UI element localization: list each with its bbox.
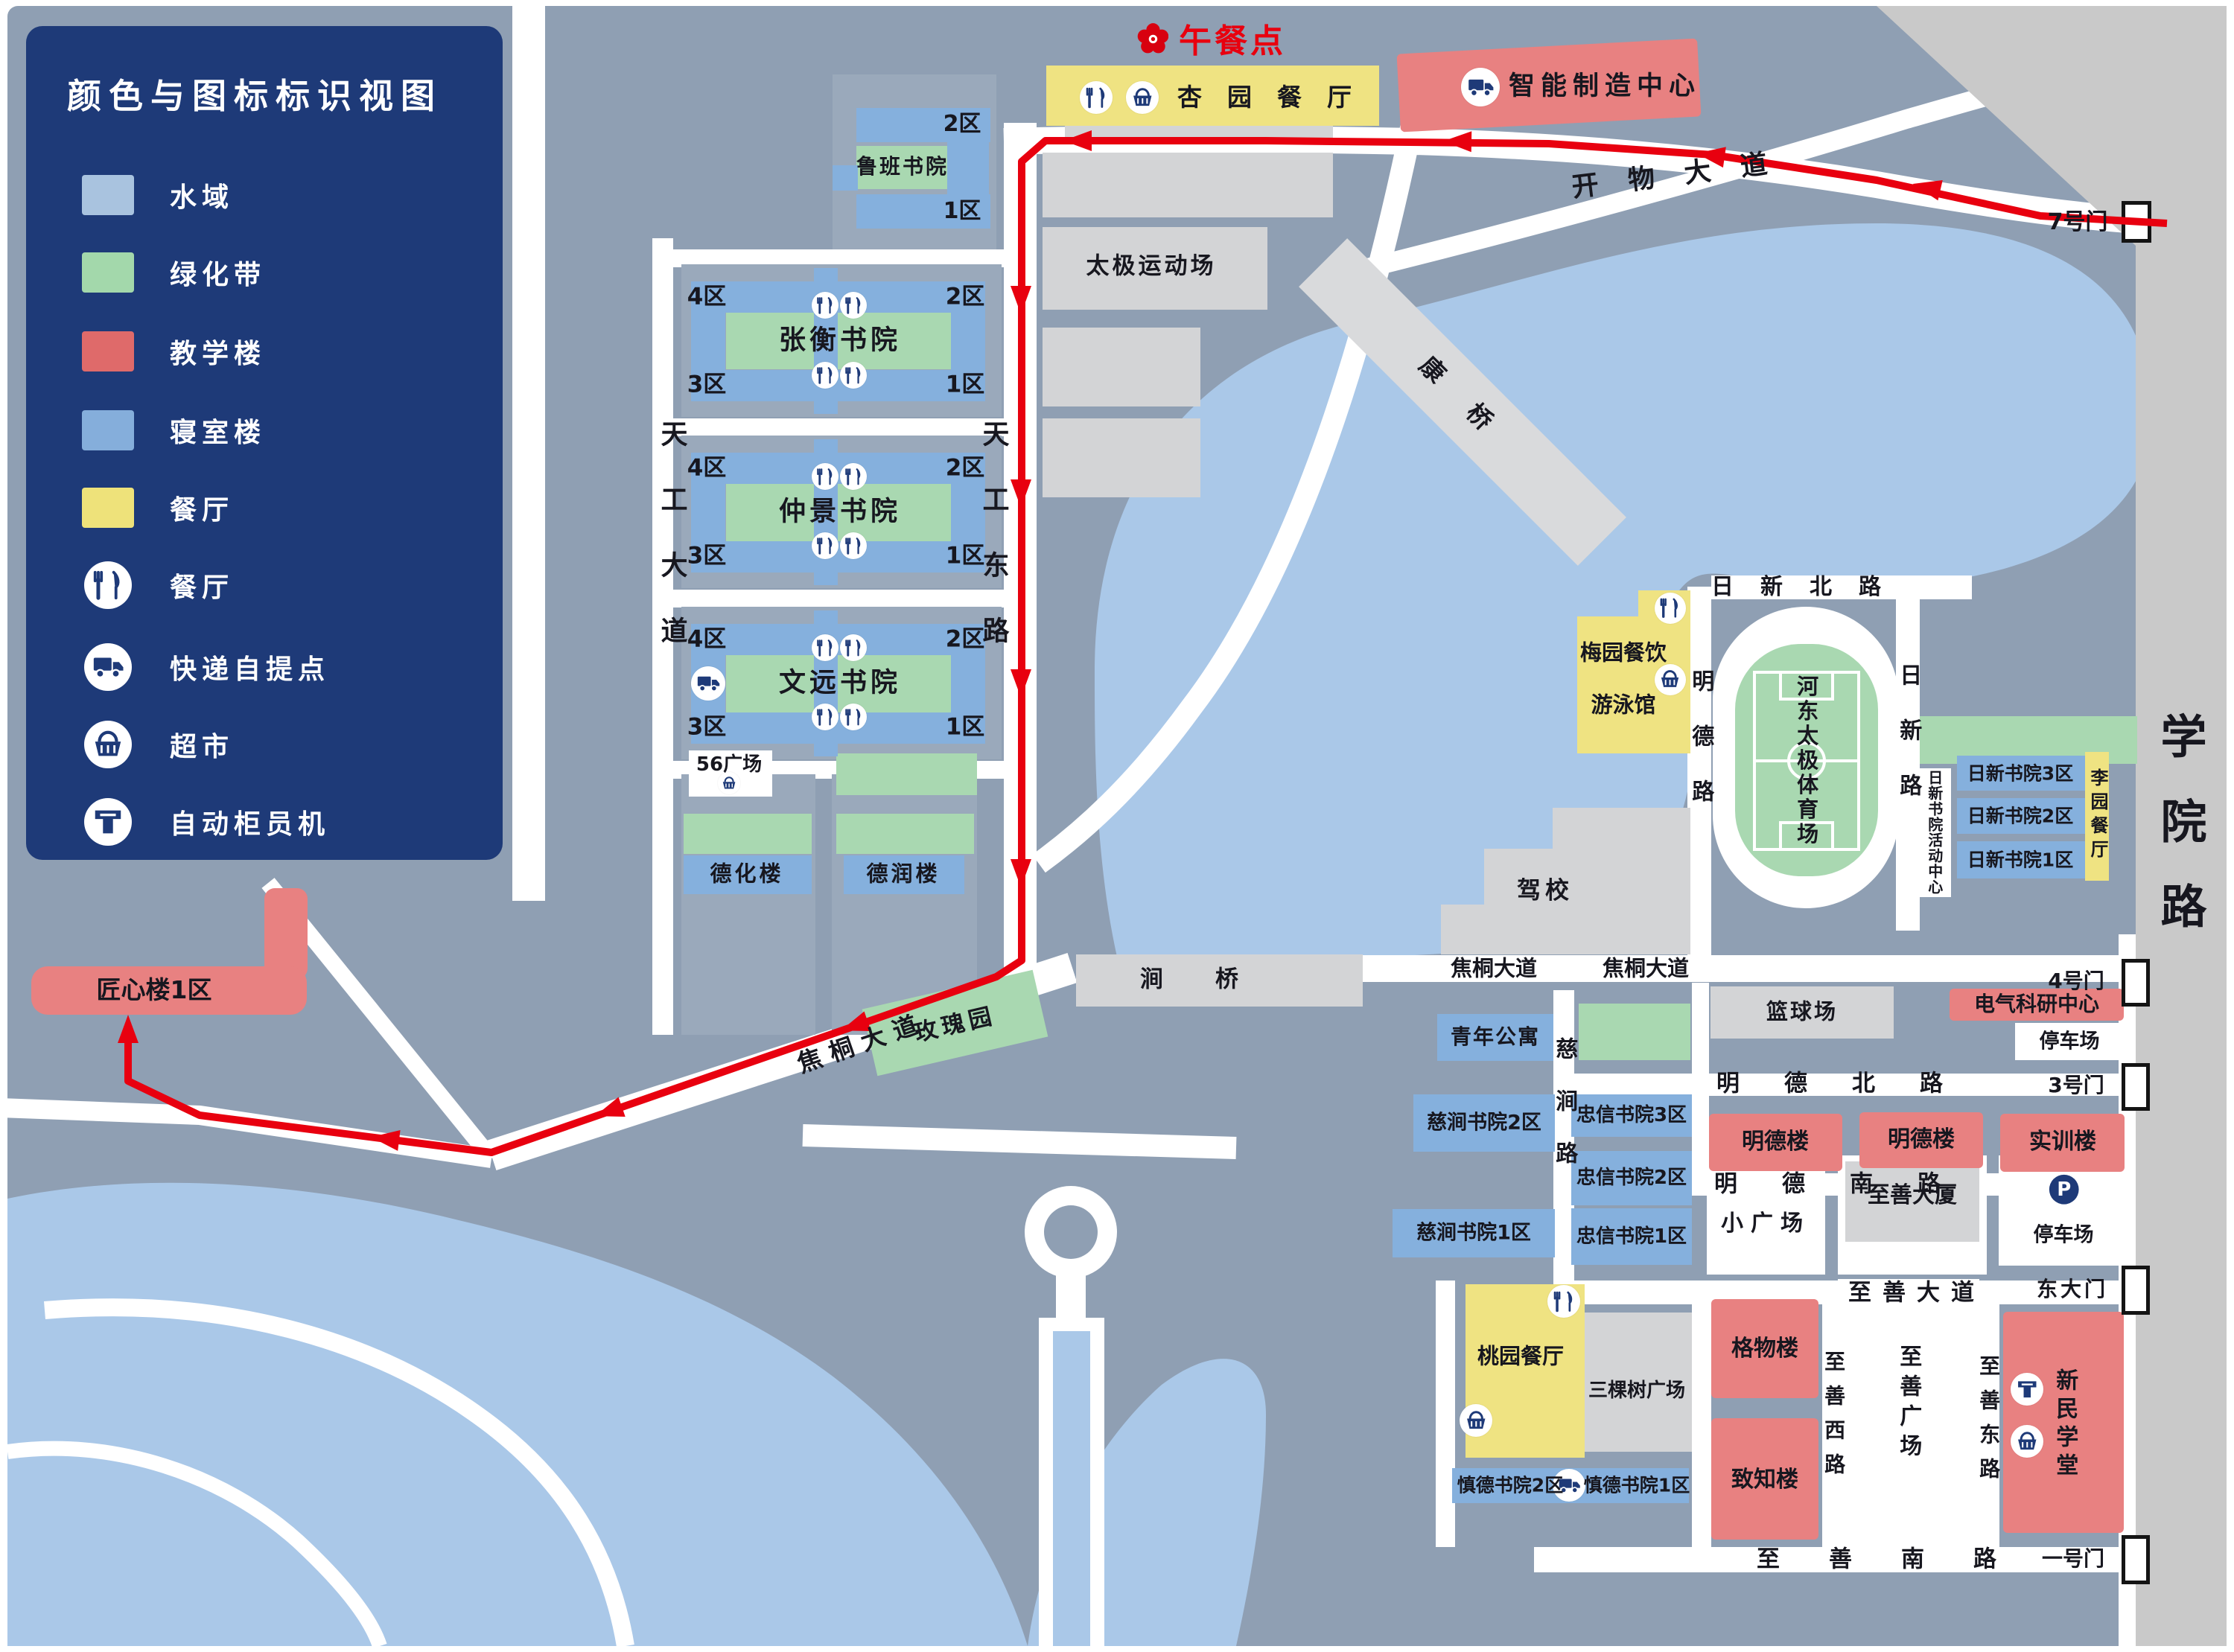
green-dehua [684, 814, 812, 854]
zhangheng-fork-4 [840, 362, 867, 389]
gate-1 [2122, 1535, 2150, 1584]
xinmin-label: 新民学堂 [2052, 1368, 2076, 1482]
electric-label: 电气科研中心 [1974, 993, 2099, 1015]
rixin2-label: 日新书院2区 [1967, 806, 2073, 826]
basketball-label: 篮球场 [1766, 1000, 1838, 1023]
zhangheng-right [951, 313, 985, 370]
tiangong-avenue: 天工大道 [657, 420, 686, 682]
rixin1-label: 日新书院1区 [1967, 850, 2073, 870]
legend-atm-icon [84, 798, 132, 846]
gate-7 [2122, 201, 2151, 243]
east-gate-label: 东大门 [2037, 1278, 2108, 1301]
gewu-label: 格物楼 [1731, 1337, 1798, 1361]
lunch-flower-icon [1131, 17, 1174, 60]
small-plaza-label: 小广场 [1721, 1212, 1810, 1236]
stadium-label: 河东太极体育场 [1794, 675, 1817, 847]
wenyuan-z1: 1区 [946, 715, 985, 739]
xinmin-atm-icon [2011, 1373, 2043, 1406]
rixin3-label: 日新书院3区 [1967, 764, 2073, 784]
taiji-bar-4 [1043, 418, 1200, 497]
taoyuan-fork-icon [1547, 1285, 1580, 1318]
wenyuan-fork-3 [812, 704, 838, 730]
legend-fork-icon [84, 561, 132, 609]
gate-4 [2122, 959, 2150, 1007]
mingde-rd: 明德路 [1688, 669, 1712, 835]
dehua-label: 德化楼 [710, 862, 783, 885]
canal-water [1053, 1331, 1090, 1646]
legend-swatch-5 [82, 488, 134, 528]
zhishan-east-rd: 至善东路 [1977, 1355, 1999, 1492]
green-56 [836, 753, 977, 795]
legend-item-label: 快递自提点 [170, 648, 330, 686]
legend-item-label: 寝室楼 [170, 411, 266, 450]
zhangheng-fork-1 [812, 292, 838, 319]
zhongjing-fork-2 [840, 463, 867, 490]
zhishan-south-rd: 至善南路 [1757, 1547, 2046, 1572]
rixin-rd: 日新路 [1896, 663, 1920, 829]
xinmin-basket-icon [2011, 1425, 2043, 1458]
zhangheng-z1: 1区 [946, 372, 985, 397]
legend-item-label: 绿化带 [170, 253, 266, 292]
legend-truck-icon [84, 643, 132, 691]
zhongjing-name: 仲景书院 [779, 498, 901, 527]
taiji-bar-1 [1043, 153, 1333, 217]
pool-label: 游泳馆 [1591, 693, 1655, 716]
meiyuan-fork-icon [1655, 593, 1686, 624]
legend-title: 颜色与图标标识视图 [67, 69, 442, 118]
gate-east [2122, 1266, 2150, 1315]
wenyuan-fork-1 [812, 634, 838, 661]
legend-item-label: 餐厅 [170, 566, 234, 605]
shixun-label: 实训楼 [2029, 1130, 2096, 1154]
wenyuan-truck-icon [691, 666, 725, 701]
zhangheng-fork-2 [840, 292, 867, 319]
wenyuan-name: 文远书院 [779, 669, 901, 698]
taiji-bar-3 [1043, 328, 1200, 406]
campus-map: P 午餐点杏园餐厅智能制造中心开物大道7号门鲁班书院2区1区张衡书院4区2区3区… [0, 0, 2234, 1652]
legend-swatch-4 [82, 410, 134, 450]
zhishan-ave: 至善大道 [1848, 1281, 1985, 1305]
zhongjing-z4: 4区 [687, 456, 727, 480]
zhongjing-left [691, 484, 725, 541]
west-vertical-road [512, 0, 545, 901]
legend-item-5: 餐厅 [82, 482, 234, 534]
luban-nub [833, 165, 858, 191]
wenyuan-fork-4 [840, 704, 867, 730]
jiangxin-vert [264, 888, 308, 979]
zhangheng-z4: 4区 [687, 284, 727, 309]
parking-north-label: 停车场 [2040, 1030, 2100, 1052]
zhangheng-z3: 3区 [687, 372, 727, 397]
legend-swatch-2 [82, 252, 134, 293]
legend-swatch-1 [82, 175, 134, 215]
tiangong-east-rd: 天工东路 [978, 420, 1008, 682]
rixin-north-rd: 日新北路 [1711, 575, 1908, 599]
legend-panel: 颜色与图标标识视图 水域绿化带教学楼寝室楼餐厅餐厅快递自提点超市自动柜员机 [26, 26, 503, 860]
shende1-label: 慎德书院1区 [1584, 1476, 1690, 1496]
legend-item-4: 寝室楼 [82, 404, 266, 456]
wenyuan-z4: 4区 [687, 627, 727, 651]
xingyuan-basket-icon [1126, 81, 1159, 114]
shende2-label: 慎德书院2区 [1457, 1476, 1563, 1496]
lunch-point: 午餐点 [1179, 24, 1286, 60]
green-jiaotong [1579, 1004, 1690, 1060]
zhongxin1-label: 忠信书院1区 [1576, 1226, 1687, 1247]
zhongjing-fork-3 [812, 532, 838, 559]
mingde-north-rd: 明德北路 [1716, 1071, 1988, 1096]
parking-p-icon: P [2043, 1169, 2085, 1211]
luban-right [947, 142, 989, 196]
cijian2-label: 慈涧书院2区 [1427, 1112, 1541, 1133]
plaza56-label: 56广场 [696, 754, 762, 775]
youth-apartment-label: 青年公寓 [1451, 1026, 1540, 1048]
legend-item-3: 教学楼 [82, 325, 266, 377]
jian-bridge-label: 涧桥 [1140, 967, 1291, 992]
derun-label: 德润楼 [866, 862, 940, 885]
zhongjing-z3: 3区 [687, 543, 727, 568]
taoyuan-basket-icon [1460, 1404, 1492, 1437]
wenyuan-z3: 3区 [687, 715, 727, 739]
taoyuan-label: 桃园餐厅 [1477, 1345, 1564, 1368]
parking-east-label: 停车场 [2034, 1224, 2094, 1246]
luban-z1: 1区 [943, 200, 981, 223]
legend-item-label: 餐厅 [170, 488, 234, 527]
svg-text:P: P [2058, 1179, 2072, 1201]
legend-item-6: 餐厅 [82, 559, 234, 611]
zhishan-tower-label: 至善大厦 [1868, 1184, 1957, 1208]
legend-item-label: 超市 [170, 725, 234, 764]
driving-school-3 [1441, 905, 1486, 954]
rixin-center-label: 日新书院活动中心 [1926, 770, 1942, 895]
sankeshu-label: 三棵树广场 [1588, 1380, 1685, 1401]
pool-basket-icon [1655, 664, 1686, 695]
zhangheng-fork-3 [812, 362, 838, 389]
jiaotong-2: 焦桐大道 [1603, 957, 1689, 980]
jiangxin-label: 匠心楼1区 [97, 977, 212, 1004]
jiaotong-1: 焦桐大道 [1451, 957, 1537, 980]
smart-mfg-label: 智能制造中心 [1509, 73, 1701, 101]
legend-item-2: 绿化带 [82, 246, 266, 299]
zhongxin2-label: 忠信书院2区 [1576, 1167, 1687, 1188]
xueyuan-rd: 学院路 [2154, 712, 2204, 967]
legend-item-9: 自动柜员机 [82, 796, 330, 848]
zhongjing-fork-1 [812, 463, 838, 490]
pier-stub [1056, 1275, 1086, 1321]
gewu-side-road [1692, 1304, 1711, 1547]
gate4-label: 4号门 [2048, 970, 2104, 992]
legend-item-7: 快递自提点 [82, 641, 330, 693]
cijian-rd: 慈涧路 [1552, 1037, 1576, 1193]
pier-road [803, 1135, 1236, 1148]
gate3-label: 3号门 [2048, 1074, 2104, 1097]
legend-swatch-3 [82, 331, 134, 371]
zhongxin3-label: 忠信书院3区 [1576, 1105, 1687, 1126]
luban-z2: 2区 [943, 112, 981, 136]
xingyuan-label: 杏园餐厅 [1177, 84, 1377, 111]
xingyuan-fork-icon [1080, 81, 1113, 114]
legend-item-label: 教学楼 [170, 332, 266, 371]
zhishan-plaza-label: 至善广场 [1896, 1345, 1920, 1464]
mingde2-label: 明德楼 [1888, 1128, 1955, 1152]
liyuan-label: 李园餐厅 [2087, 768, 2107, 864]
zhangheng-z2: 2区 [946, 284, 985, 309]
zhizhi-label: 致知楼 [1731, 1468, 1798, 1492]
legend-item-label: 自动柜员机 [170, 803, 330, 841]
driving-school-label: 驾校 [1517, 878, 1573, 904]
gate7-label: 7号门 [2048, 211, 2108, 235]
legend-item-8: 超市 [82, 718, 234, 771]
mingde1-label: 明德楼 [1742, 1130, 1809, 1154]
gate-3 [2122, 1063, 2150, 1111]
luban-name: 鲁班书院 [856, 156, 949, 178]
taiji-label: 太极运动场 [1086, 254, 1217, 278]
green-derun [836, 814, 974, 854]
zhongjing-fork-4 [840, 532, 867, 559]
zhishan-west-rd: 至善西路 [1822, 1350, 1845, 1487]
legend-item-label: 水域 [170, 176, 234, 214]
legend-basket-icon [84, 721, 132, 768]
zhangheng-name: 张衡书院 [779, 327, 901, 356]
fountain-inner [1044, 1205, 1098, 1259]
taoyuan-side-road [1436, 1281, 1455, 1547]
meiyuan-label: 梅园餐饮 [1580, 641, 1667, 664]
smart-mfg-truck-icon [1461, 68, 1500, 106]
legend-item-1: 水域 [82, 169, 234, 221]
wenyuan-fork-2 [840, 634, 867, 661]
cijian1-label: 慈涧书院1区 [1416, 1222, 1531, 1243]
gate1-label: 一号门 [2042, 1548, 2104, 1570]
zhangheng-left [691, 313, 725, 370]
